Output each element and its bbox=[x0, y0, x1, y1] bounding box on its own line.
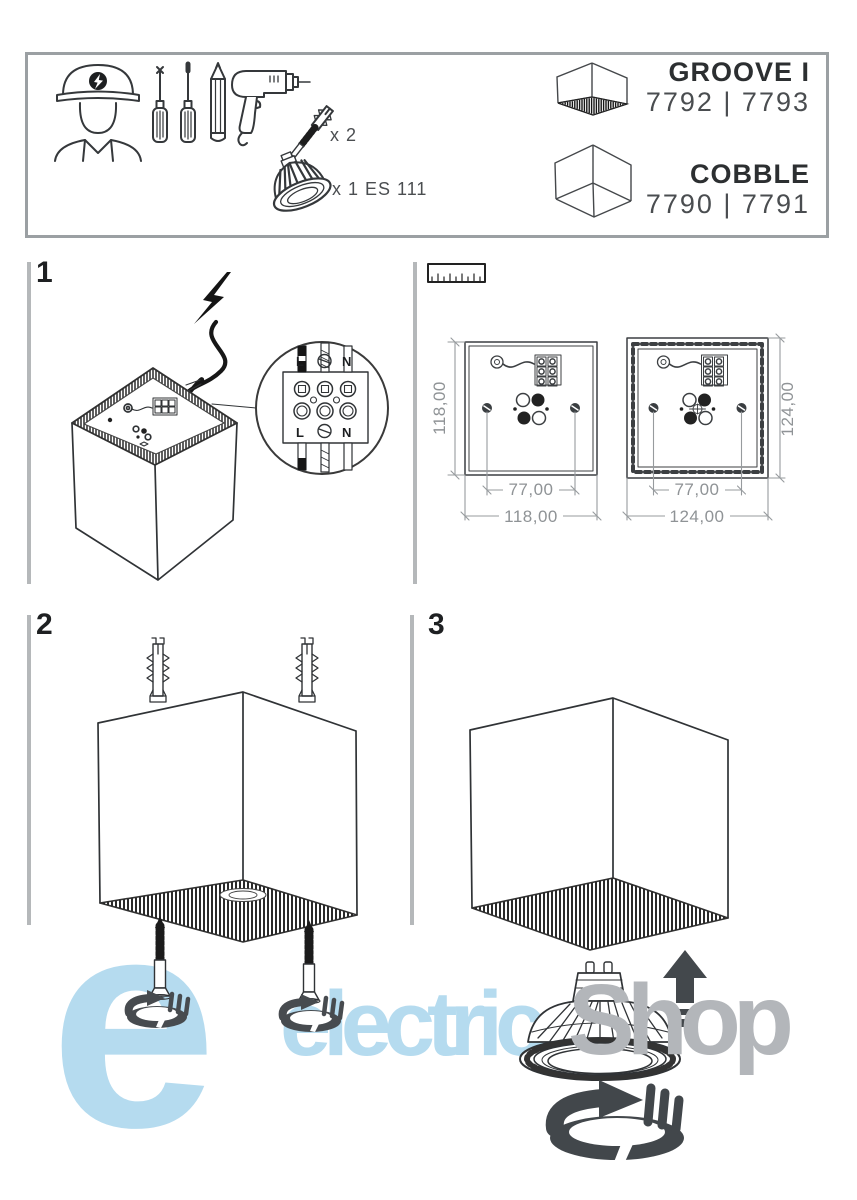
anchor-qty-label: x 2 bbox=[330, 125, 357, 146]
manual-page: { "kit": { "anchor_qty": "x 2", "bulb_qt… bbox=[0, 0, 857, 1200]
lamp-body-cube bbox=[470, 698, 728, 950]
dim-height-large: 124,00 bbox=[778, 369, 798, 449]
rotate-icon-large bbox=[550, 1080, 684, 1164]
mount-plate-small bbox=[465, 342, 597, 475]
watermark-suffix-text: Shop bbox=[568, 970, 786, 1070]
step-number-1: 1 bbox=[36, 256, 53, 290]
drill-icon bbox=[232, 71, 310, 145]
wall-plug-icon bbox=[147, 638, 169, 702]
dim-holes-small: 77,00 bbox=[496, 480, 566, 500]
bulb-insert-drawing bbox=[420, 612, 857, 1172]
screw-icon bbox=[149, 916, 171, 1000]
mounting-drawing bbox=[30, 612, 415, 1050]
product-codes-groove: 7792 | 7793 bbox=[646, 87, 810, 118]
mini-terminal-block bbox=[153, 398, 177, 415]
bulb-qty-label: x 1 ES 111 bbox=[332, 179, 427, 200]
lightning-icon bbox=[194, 272, 231, 324]
step-number-2: 2 bbox=[36, 608, 53, 642]
live-label-bottom: L bbox=[296, 425, 304, 440]
live-label-top: L bbox=[296, 354, 304, 369]
product-cube-groove bbox=[557, 63, 627, 115]
neutral-label-top: N bbox=[342, 354, 351, 369]
pencil-icon bbox=[211, 63, 225, 141]
neutral-label-bottom: N bbox=[342, 425, 351, 440]
rotate-icon bbox=[127, 990, 188, 1028]
installer-icon bbox=[55, 65, 141, 161]
dim-height-small: 118,00 bbox=[430, 368, 450, 448]
screwdrivers-icon bbox=[153, 64, 195, 142]
dim-width-small: 118,00 bbox=[491, 507, 571, 527]
product-name-groove: GROOVE I bbox=[668, 57, 810, 88]
product-codes-cobble: 7790 | 7791 bbox=[646, 189, 810, 220]
rotate-icon bbox=[281, 994, 342, 1032]
step-number-3: 3 bbox=[428, 608, 445, 642]
divider bbox=[27, 262, 31, 584]
dim-width-large: 124,00 bbox=[657, 507, 737, 527]
kit-box: x 2 x 1 ES 111 GROOVE I 7792 | 7793 COBB… bbox=[25, 52, 829, 238]
wiring-drawing: L N L N bbox=[40, 258, 412, 588]
lamp-body-cube bbox=[98, 692, 357, 942]
ruler-icon bbox=[428, 264, 485, 282]
dim-holes-large: 77,00 bbox=[662, 480, 732, 500]
divider bbox=[413, 262, 417, 584]
wall-plug-icon bbox=[296, 638, 318, 702]
mount-plate-large bbox=[627, 338, 768, 478]
product-cube-cobble bbox=[555, 145, 631, 217]
screw-icon bbox=[298, 920, 320, 1004]
wiring-detail bbox=[256, 342, 388, 474]
product-name-cobble: COBBLE bbox=[690, 159, 810, 190]
power-cable bbox=[182, 322, 226, 401]
